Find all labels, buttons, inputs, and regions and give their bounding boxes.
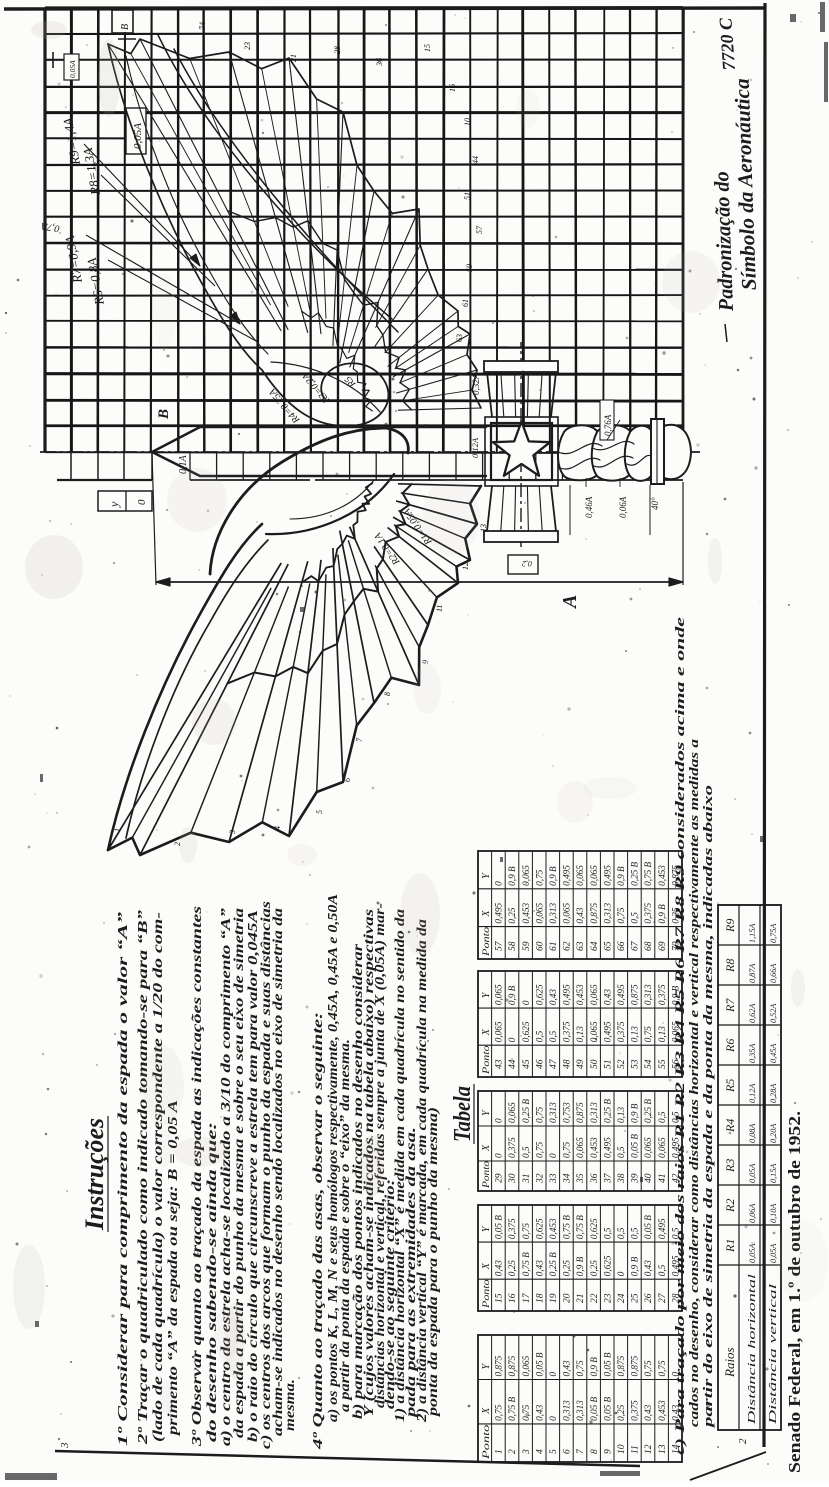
svg-text:8: 8 — [590, 1449, 600, 1454]
svg-text:0,12A: 0,12A — [748, 1083, 757, 1103]
svg-text:11: 11 — [435, 605, 444, 612]
svg-text:0,313: 0,313 — [575, 1400, 585, 1421]
svg-text:0,25: 0,25 — [507, 907, 517, 923]
svg-text:0,25 B: 0,25 B — [521, 1099, 531, 1123]
svg-text:0,9 B: 0,9 B — [630, 1256, 640, 1276]
svg-text:2: 2 — [508, 1449, 518, 1454]
svg-text:0,43: 0,43 — [602, 989, 612, 1005]
svg-text:0,453: 0,453 — [521, 903, 531, 924]
svg-text:0,065: 0,065 — [494, 984, 504, 1005]
svg-text:10: 10 — [617, 1444, 627, 1454]
svg-text:0,08A: 0,08A — [748, 1123, 757, 1143]
svg-text:45: 45 — [522, 1059, 532, 1069]
svg-text:33: 33 — [549, 1173, 559, 1184]
svg-text:0,375: 0,375 — [562, 1021, 572, 1042]
svg-text:0: 0 — [136, 499, 148, 505]
svg-text:0,75: 0,75 — [562, 1142, 572, 1158]
svg-text:(lado de cada quadrícula) o va: (lado de cada quadrícula) o valor corres… — [150, 911, 165, 1442]
svg-text:0,75: 0,75 — [643, 1026, 653, 1042]
svg-text:6: 6 — [343, 778, 352, 782]
svg-text:0,5: 0,5 — [616, 1146, 626, 1158]
svg-text:0,05 B: 0,05 B — [630, 1134, 640, 1158]
svg-text:38: 38 — [617, 1173, 627, 1184]
svg-text:X: X — [481, 1262, 492, 1270]
svg-text:0: 0 — [521, 1000, 531, 1005]
svg-text:0,313: 0,313 — [643, 984, 653, 1005]
svg-text:0,495: 0,495 — [494, 903, 504, 924]
svg-text:B: B — [120, 24, 131, 30]
svg-text:X: X — [481, 910, 492, 918]
svg-text:0,065: 0,065 — [507, 1102, 517, 1123]
svg-text:0: 0 — [494, 881, 504, 886]
svg-text:57: 57 — [495, 940, 505, 951]
svg-text:c) Para traçado por meio dos r: c) Para traçado por meio dos raios R1 R2… — [672, 617, 687, 1455]
svg-text:47: 47 — [549, 1058, 559, 1069]
svg-text:Ponto: Ponto — [482, 1045, 492, 1075]
svg-text:5: 5 — [315, 810, 324, 814]
svg-text:0,313: 0,313 — [589, 1102, 599, 1123]
svg-text:0,875: 0,875 — [494, 1355, 504, 1376]
svg-text:21: 21 — [576, 1294, 586, 1304]
svg-text:0,20A: 0,20A — [769, 1123, 778, 1143]
svg-text:51: 51 — [603, 1060, 613, 1070]
svg-text:0,75 B: 0,75 B — [575, 1215, 585, 1239]
svg-text:0,625: 0,625 — [534, 1218, 544, 1239]
svg-text:0,62A: 0,62A — [748, 1003, 757, 1023]
svg-text:40: 40 — [644, 1173, 654, 1183]
svg-text:ponta da espada para o punho d: ponta da espada para o punho da mesma) — [425, 1107, 440, 1417]
svg-text:0,13: 0,13 — [575, 1026, 585, 1042]
svg-text:0: 0 — [494, 1118, 504, 1123]
svg-text:0,25: 0,25 — [507, 1260, 517, 1276]
svg-text:27: 27 — [658, 1292, 668, 1303]
svg-text:0,9 B: 0,9 B — [630, 1103, 640, 1123]
svg-text:0: 0 — [548, 1372, 558, 1377]
svg-text:do desenho sabendo-se ainda qu: do desenho sabendo-se ainda que: — [204, 1122, 219, 1442]
svg-text:acham-se indicados no desenho: acham-se indicados no desenho sendo loca… — [270, 908, 285, 1436]
svg-text:4: 4 — [273, 826, 282, 830]
svg-text:16: 16 — [508, 1293, 518, 1303]
svg-text:2: 2 — [737, 1438, 749, 1444]
svg-text:0,875: 0,875 — [616, 1355, 626, 1376]
svg-text:15: 15 — [423, 44, 432, 52]
svg-text:0,06A: 0,06A — [748, 1203, 757, 1223]
svg-text:1: 1 — [113, 828, 122, 832]
svg-text:0,495: 0,495 — [616, 984, 626, 1005]
svg-text:0,05A: 0,05A — [68, 60, 77, 78]
svg-text:60: 60 — [535, 941, 545, 951]
svg-text:3: 3 — [522, 1449, 532, 1455]
svg-text:0,75: 0,75 — [521, 1404, 531, 1420]
svg-text:34: 34 — [563, 1173, 573, 1184]
svg-text:41: 41 — [658, 1174, 668, 1184]
svg-text:0,05A: 0,05A — [748, 1243, 757, 1263]
svg-text:0,875: 0,875 — [575, 1102, 585, 1123]
svg-text:0,75: 0,75 — [643, 1360, 653, 1376]
svg-text:0,75A: 0,75A — [769, 923, 778, 943]
svg-text:0,52A: 0,52A — [769, 1003, 778, 1023]
svg-text:74: 74 — [198, 22, 207, 30]
svg-text:37: 37 — [603, 1172, 613, 1184]
svg-text:0,875: 0,875 — [630, 1355, 640, 1376]
svg-text:Ponto: Ponto — [482, 1424, 492, 1460]
svg-text:0,5: 0,5 — [657, 1111, 667, 1123]
svg-text:26: 26 — [644, 1293, 654, 1303]
svg-text:62: 62 — [563, 941, 573, 951]
svg-text:69: 69 — [658, 941, 668, 951]
svg-text:43: 43 — [495, 1059, 505, 1069]
svg-text:58: 58 — [508, 941, 518, 951]
svg-text:50: 50 — [590, 1059, 600, 1069]
svg-text:0,05 B: 0,05 B — [534, 1352, 544, 1376]
svg-text:0,13: 0,13 — [616, 1107, 626, 1123]
svg-text:0,43: 0,43 — [494, 1260, 504, 1276]
svg-text:59: 59 — [522, 941, 532, 951]
svg-text:0,05 B: 0,05 B — [602, 1397, 612, 1421]
svg-text:40°: 40° — [650, 497, 660, 510]
svg-text:0,065: 0,065 — [494, 1021, 504, 1042]
svg-text:0,065: 0,065 — [575, 1137, 585, 1158]
svg-text:17: 17 — [522, 1292, 532, 1303]
svg-text:28: 28 — [333, 46, 342, 54]
svg-text:66: 66 — [617, 941, 627, 951]
svg-text:R8: R8 — [723, 959, 737, 973]
svg-text:0,13: 0,13 — [657, 1026, 667, 1042]
svg-text:31: 31 — [522, 1174, 532, 1185]
svg-text:36: 36 — [375, 58, 384, 67]
svg-text:0,875: 0,875 — [630, 984, 640, 1005]
svg-text:0,43: 0,43 — [534, 1260, 544, 1276]
svg-text:25: 25 — [631, 1293, 641, 1303]
svg-text:0,75: 0,75 — [521, 1223, 531, 1239]
svg-text:0,25 B: 0,25 B — [630, 861, 640, 885]
svg-text:partir do eixo de simetria da: partir do eixo de simetria da espada e d… — [701, 785, 715, 1429]
svg-text:0,375: 0,375 — [507, 1137, 517, 1158]
svg-text:7720 C: 7720 C — [715, 16, 739, 71]
svg-text:0,75 B: 0,75 B — [562, 1215, 572, 1239]
svg-text:1: 1 — [495, 1449, 505, 1454]
svg-text:0,75: 0,75 — [575, 1360, 585, 1376]
svg-text:Distância vertical: Distância vertical — [767, 1284, 779, 1426]
svg-text:R2: R2 — [723, 1199, 737, 1213]
svg-text:18: 18 — [535, 1293, 545, 1303]
svg-text:53: 53 — [631, 1059, 641, 1069]
svg-text:0,35A: 0,35A — [748, 1043, 757, 1063]
svg-text:3º Observar quanto ao traçado: 3º Observar quanto ao traçado da espada … — [189, 906, 204, 1447]
svg-text:5: 5 — [549, 1449, 559, 1454]
svg-text:0,453: 0,453 — [575, 984, 585, 1005]
svg-text:0,625: 0,625 — [589, 1218, 599, 1239]
svg-text:68: 68 — [644, 941, 654, 951]
svg-text:0,75: 0,75 — [657, 1360, 667, 1376]
svg-text:0: 0 — [548, 1416, 558, 1421]
svg-text:0,9 B: 0,9 B — [575, 1256, 585, 1276]
svg-text:0,25 B: 0,25 B — [548, 1252, 558, 1276]
svg-text:0,5: 0,5 — [630, 912, 640, 924]
svg-text:49: 49 — [576, 1059, 586, 1069]
svg-text:8: 8 — [383, 692, 392, 696]
svg-text:0,495: 0,495 — [602, 1021, 612, 1042]
svg-text:R1: R1 — [723, 1239, 737, 1253]
svg-text:0,065: 0,065 — [534, 903, 544, 924]
svg-text:0,43: 0,43 — [643, 1404, 653, 1420]
svg-text:6: 6 — [563, 1449, 573, 1454]
svg-text:0,453: 0,453 — [589, 1137, 599, 1158]
svg-text:0,05 B: 0,05 B — [643, 1215, 653, 1239]
svg-text:20: 20 — [563, 1293, 573, 1303]
svg-text:46: 46 — [535, 1059, 545, 1069]
svg-text:11: 11 — [631, 1445, 641, 1454]
svg-text:R9: R9 — [723, 919, 737, 933]
svg-text:0,065: 0,065 — [643, 1137, 653, 1158]
svg-text:9: 9 — [603, 1449, 613, 1454]
svg-text:0,75: 0,75 — [616, 907, 626, 923]
svg-text:67: 67 — [631, 940, 641, 951]
svg-text:1,15A: 1,15A — [748, 923, 757, 943]
svg-text:0,05 B: 0,05 B — [602, 1352, 612, 1376]
svg-text:0,75 B: 0,75 B — [643, 861, 653, 885]
svg-text:35: 35 — [576, 1173, 586, 1184]
svg-text:12: 12 — [461, 562, 470, 570]
svg-text:1º Considerar para comprimento: 1º Considerar para comprimento da espada… — [115, 912, 130, 1446]
svg-text:0,43: 0,43 — [562, 1360, 572, 1376]
svg-text:0,15A: 0,15A — [769, 1163, 778, 1183]
svg-text:57: 57 — [475, 225, 484, 234]
svg-text:X: X — [481, 1144, 492, 1152]
svg-text:0,9 B: 0,9 B — [548, 866, 558, 886]
svg-text:0,453: 0,453 — [657, 1400, 667, 1421]
svg-text:0,05 B: 0,05 B — [589, 1397, 599, 1421]
svg-text:0,25: 0,25 — [616, 1404, 626, 1420]
svg-text:22: 22 — [590, 1293, 600, 1303]
svg-text:0: 0 — [616, 1271, 626, 1276]
svg-text:0,5: 0,5 — [534, 1030, 544, 1042]
svg-text:63: 63 — [576, 941, 586, 951]
svg-text:13: 13 — [479, 524, 488, 532]
svg-text:0,5: 0,5 — [521, 1146, 531, 1158]
svg-text:0,5: 0,5 — [548, 1030, 558, 1042]
svg-text:55: 55 — [658, 1059, 668, 1069]
svg-text:A: A — [559, 595, 581, 610]
svg-text:0,75 B: 0,75 B — [507, 1397, 517, 1421]
svg-text:0,375: 0,375 — [657, 984, 667, 1005]
svg-text:0,75: 0,75 — [534, 1142, 544, 1158]
svg-text:0,875: 0,875 — [589, 903, 599, 924]
svg-text:0,05 B: 0,05 B — [494, 1215, 504, 1239]
svg-text:0,9 B: 0,9 B — [507, 985, 517, 1005]
svg-text:0,625: 0,625 — [521, 1021, 531, 1042]
svg-text:44: 44 — [508, 1059, 518, 1069]
svg-text:51: 51 — [463, 192, 472, 200]
svg-text:0,66A: 0,66A — [769, 963, 778, 983]
svg-text:10: 10 — [463, 118, 472, 126]
svg-text:Instruções: Instruções — [80, 1118, 109, 1231]
svg-text:0,625: 0,625 — [534, 984, 544, 1005]
svg-text:23: 23 — [243, 42, 252, 50]
svg-text:0,43: 0,43 — [534, 1404, 544, 1420]
svg-text:0,495: 0,495 — [657, 1218, 667, 1239]
svg-text:y: y — [107, 501, 121, 508]
svg-text:0: 0 — [507, 1037, 517, 1042]
svg-text:48: 48 — [563, 1059, 573, 1069]
svg-text:0,065: 0,065 — [521, 1355, 531, 1376]
svg-text:0,495: 0,495 — [562, 865, 572, 886]
svg-text:R5: R5 — [723, 1079, 737, 1093]
svg-text:0,375: 0,375 — [616, 1021, 626, 1042]
svg-text:0,375: 0,375 — [507, 1218, 517, 1239]
svg-text:0,495: 0,495 — [602, 865, 612, 886]
svg-text:4: 4 — [535, 1449, 545, 1454]
svg-text:44: 44 — [471, 156, 480, 164]
svg-text:0,25: 0,25 — [589, 1260, 599, 1276]
svg-text:0,25 B: 0,25 B — [643, 1099, 653, 1123]
svg-text:mesma.: mesma. — [282, 1379, 297, 1431]
svg-text:15: 15 — [495, 1293, 505, 1303]
svg-text:0,75: 0,75 — [534, 1107, 544, 1123]
svg-text:32: 32 — [535, 1173, 545, 1184]
svg-text:0,375: 0,375 — [630, 1400, 640, 1421]
svg-text:0,9 B: 0,9 B — [616, 866, 626, 886]
svg-text:0,9 B: 0,9 B — [589, 1357, 599, 1377]
svg-text:R3: R3 — [723, 1159, 737, 1173]
svg-text:0,75 B: 0,75 B — [521, 1252, 531, 1276]
svg-text:0,43: 0,43 — [643, 1260, 653, 1276]
svg-text:cados no desenho, considerar c: cados no desenho, considerar como distân… — [687, 739, 701, 1427]
svg-text:24: 24 — [617, 1293, 627, 1303]
svg-text:52: 52 — [617, 1059, 627, 1069]
svg-text:0,13: 0,13 — [630, 1026, 640, 1042]
svg-text:0,065: 0,065 — [657, 1137, 667, 1158]
svg-text:0,12A: 0,12A — [470, 437, 480, 458]
svg-text:0,065: 0,065 — [589, 984, 599, 1005]
svg-text:59: 59 — [465, 264, 474, 272]
svg-text:R4: R4 — [723, 1119, 737, 1133]
svg-text:4º Quanto ao traçado das asas,: 4º Quanto ao traçado das asas, observar … — [310, 1012, 325, 1451]
svg-text:Tabela: Tabela — [450, 1086, 476, 1142]
svg-text:21: 21 — [289, 54, 298, 62]
svg-text:0,25: 0,25 — [562, 1260, 572, 1276]
svg-text:0,75: 0,75 — [494, 1404, 504, 1420]
svg-text:0,5: 0,5 — [616, 1227, 626, 1239]
svg-text:61: 61 — [549, 942, 559, 952]
svg-text:0,495: 0,495 — [562, 984, 572, 1005]
svg-text:X: X — [481, 1028, 492, 1036]
svg-text:0,753: 0,753 — [562, 1102, 572, 1123]
svg-text:B: B — [156, 409, 172, 420]
svg-text:61: 61 — [461, 299, 470, 307]
svg-text:39: 39 — [631, 1173, 641, 1184]
svg-text:R6: R6 — [723, 1039, 737, 1053]
svg-text:0,065: 0,065 — [575, 865, 585, 886]
svg-text:0,875: 0,875 — [507, 1355, 517, 1376]
svg-text:0,375: 0,375 — [643, 903, 653, 924]
svg-text:23: 23 — [603, 1293, 613, 1303]
svg-text:30: 30 — [508, 1173, 518, 1184]
svg-text:16: 16 — [448, 84, 457, 92]
svg-text:Distância horizontal: Distância horizontal — [746, 1274, 758, 1426]
svg-text:29: 29 — [495, 1173, 505, 1183]
svg-text:0,625: 0,625 — [602, 1255, 612, 1276]
svg-text:0,46A: 0,46A — [584, 496, 594, 518]
svg-text:X: X — [481, 1407, 492, 1415]
svg-text:13: 13 — [658, 1444, 668, 1454]
svg-text:0,25 B: 0,25 B — [602, 1099, 612, 1123]
svg-text:0,9 B: 0,9 B — [507, 866, 517, 886]
svg-text:0,065: 0,065 — [562, 903, 572, 924]
svg-text:0,313: 0,313 — [602, 903, 612, 924]
svg-text:0,10A: 0,10A — [769, 1203, 778, 1223]
svg-text:0,43: 0,43 — [575, 907, 585, 923]
svg-text:54: 54 — [644, 1059, 654, 1069]
svg-text:0,313: 0,313 — [562, 1400, 572, 1421]
svg-text:12: 12 — [644, 1444, 654, 1454]
svg-text:0: 0 — [494, 1153, 504, 1158]
svg-text:0,065: 0,065 — [589, 1021, 599, 1042]
svg-text:3: 3 — [228, 830, 237, 835]
svg-text:9: 9 — [421, 660, 430, 664]
svg-text:Ponto: Ponto — [482, 1161, 492, 1189]
svg-text:65: 65 — [603, 941, 613, 951]
svg-text:0,9 B: 0,9 B — [657, 904, 667, 924]
svg-text:Ponto: Ponto — [482, 927, 492, 958]
svg-text:Ponto: Ponto — [482, 1279, 492, 1309]
svg-text:0,313: 0,313 — [548, 903, 558, 924]
svg-text:0,75: 0,75 — [534, 869, 544, 885]
svg-text:0,06A: 0,06A — [618, 496, 628, 518]
svg-text:19: 19 — [549, 1293, 559, 1303]
svg-text:0,5: 0,5 — [657, 1264, 667, 1276]
svg-text:0,28A: 0,28A — [769, 1083, 778, 1103]
svg-text:0,065: 0,065 — [589, 865, 599, 886]
svg-text:0,453: 0,453 — [657, 865, 667, 886]
svg-text:2º Traçar o quadriculado como: 2º Traçar o quadriculado como indicado t… — [135, 910, 150, 1446]
svg-text:0,2: 0,2 — [522, 559, 532, 568]
svg-text:0,495: 0,495 — [602, 1137, 612, 1158]
svg-text:0,87A: 0,87A — [748, 963, 757, 983]
svg-text:0,5: 0,5 — [630, 1227, 640, 1239]
svg-text:0,453: 0,453 — [548, 1218, 558, 1239]
svg-text:36: 36 — [590, 1173, 600, 1184]
svg-text:64: 64 — [590, 941, 600, 951]
svg-text:Raios: Raios — [722, 1347, 737, 1378]
svg-text:0,313: 0,313 — [548, 1102, 558, 1123]
svg-text:0,43: 0,43 — [548, 989, 558, 1005]
svg-text:0,45A: 0,45A — [769, 1043, 778, 1063]
svg-text:R7: R7 — [723, 998, 737, 1013]
svg-text:0,5: 0,5 — [602, 1227, 612, 1239]
svg-text:3: 3 — [59, 1442, 71, 1449]
svg-text:0,05A: 0,05A — [748, 1163, 757, 1183]
svg-text:63: 63 — [455, 334, 464, 342]
svg-text:0: 0 — [548, 1153, 558, 1158]
